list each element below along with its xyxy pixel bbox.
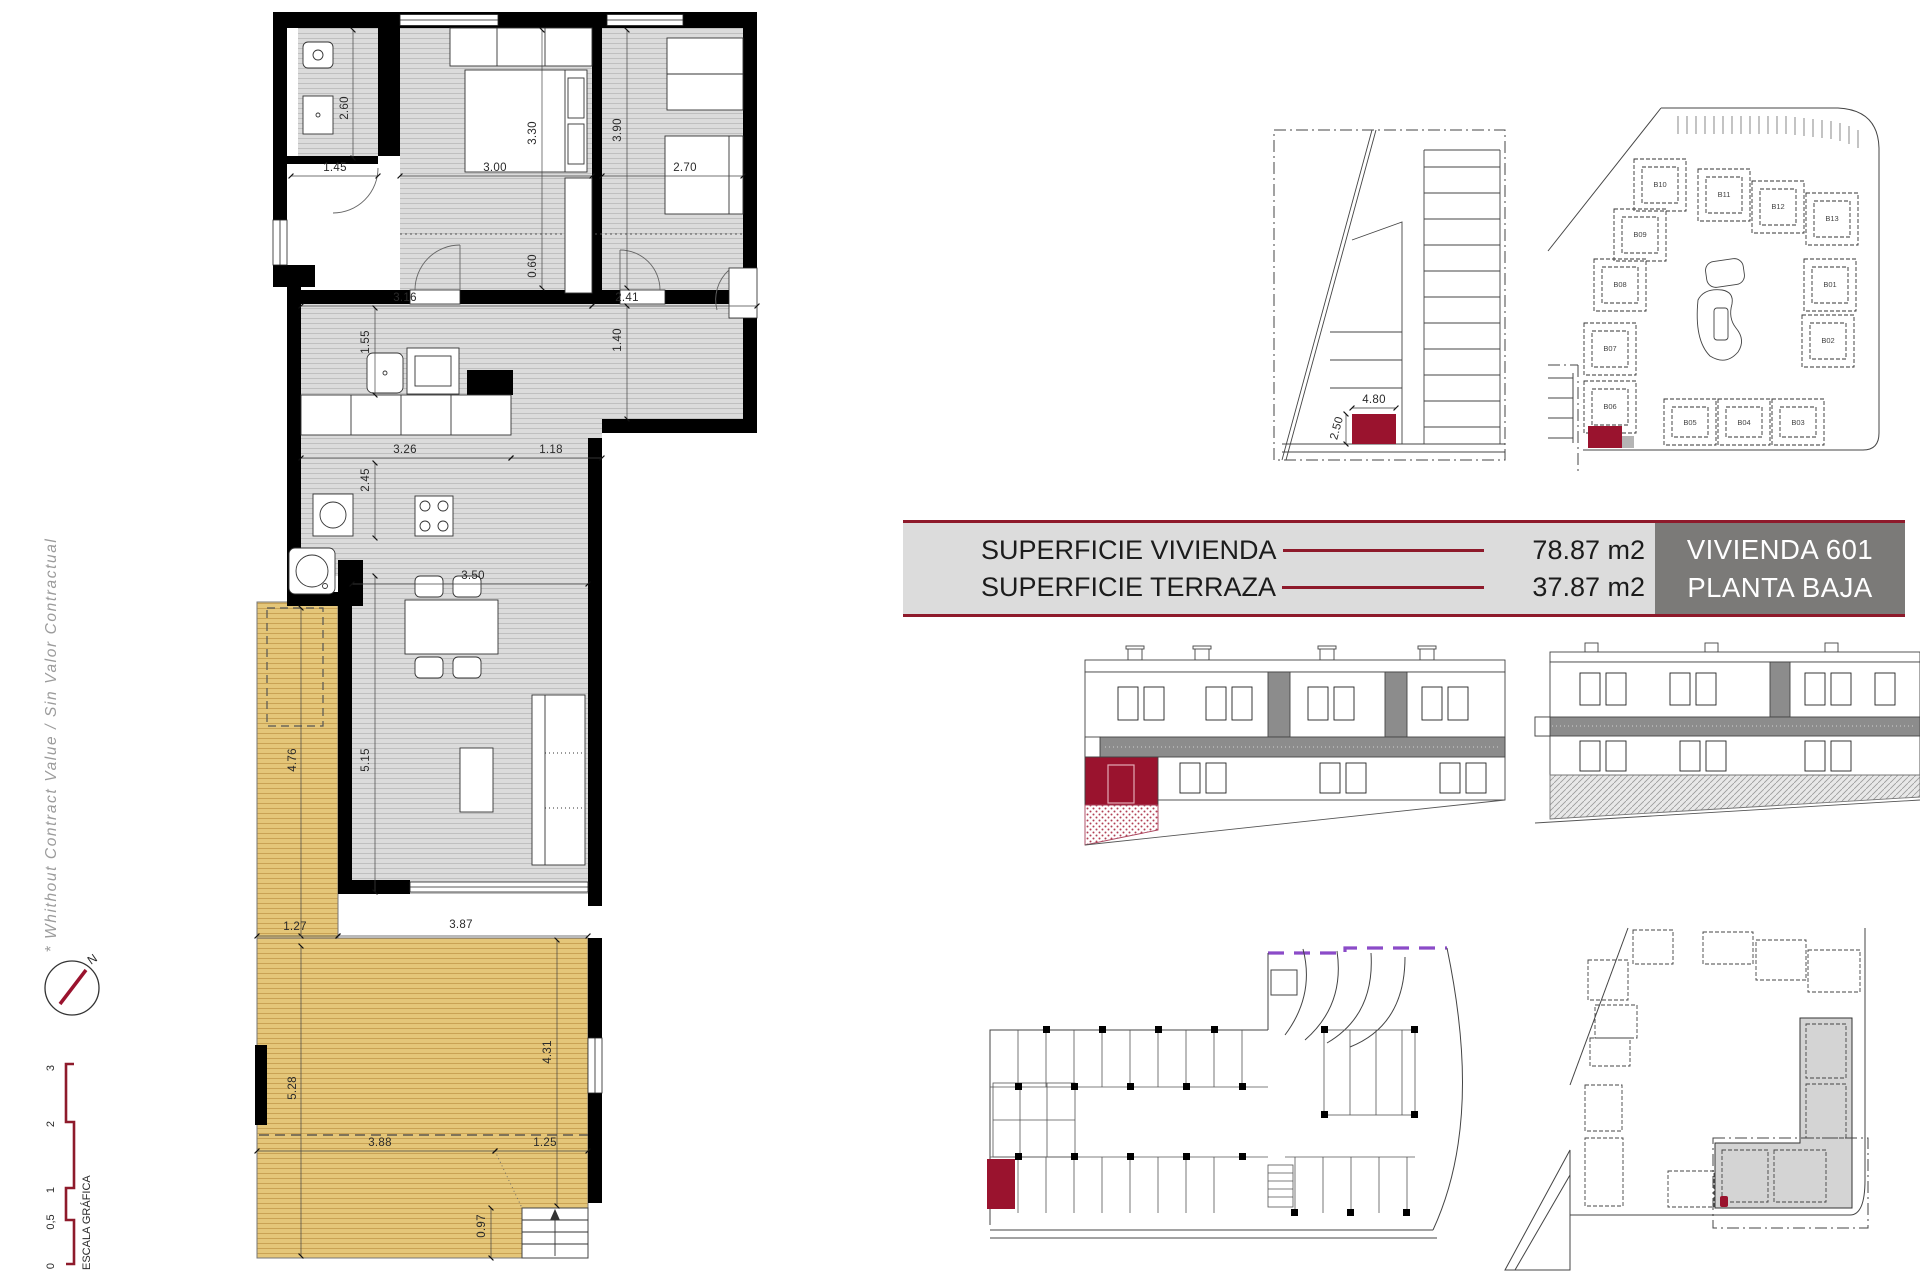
dim-label: 2.70 — [673, 162, 697, 174]
ramp-boundary-line — [1268, 948, 1447, 953]
unit-label: B13 — [1825, 214, 1838, 223]
highlighted-garage-stall — [987, 1159, 1015, 1209]
stall-length-label: 4.80 — [1362, 394, 1386, 406]
unit-label: B11 — [1718, 190, 1731, 199]
unit-label: B04 — [1737, 418, 1750, 427]
dim-label: 3.30 — [527, 121, 539, 145]
surface-value: 78.87 m2 — [1532, 535, 1645, 566]
highlighted-parking-stall — [1352, 414, 1396, 444]
dim-label: 1.40 — [612, 328, 624, 352]
dim-label: 4.76 — [287, 748, 299, 772]
unit-label: B10 — [1653, 180, 1666, 189]
dim-label: 2.60 — [339, 96, 351, 120]
parking-stalls — [990, 1030, 1415, 1213]
unit-floor: PLANTA BAJA — [1687, 572, 1872, 604]
graphic-scale-bar: 3 2 1 0,5 0 ESCALA GRÁFICA — [28, 1058, 128, 1276]
dim-label: 2.45 — [360, 468, 372, 492]
architectural-sheet: 2.60 1.45 3.00 3.30 3.90 2.70 0.60 3.16 … — [0, 0, 1920, 1280]
dim-label: 3.90 — [612, 118, 624, 142]
apartment-floor-plan: 2.60 1.45 3.00 3.30 3.90 2.70 0.60 3.16 … — [255, 8, 765, 1260]
unit-label: B01 — [1823, 280, 1836, 289]
pool — [1697, 257, 1745, 360]
dim-label: 3.16 — [393, 292, 417, 304]
surface-info-table: SUPERFICIE VIVIENDA 78.87 m2 SUPERFICIE … — [903, 520, 1905, 617]
surface-rows: SUPERFICIE VIVIENDA 78.87 m2 SUPERFICIE … — [903, 523, 1645, 614]
surface-label: SUPERFICIE TERRAZA — [981, 572, 1276, 603]
unit-label: B06 — [1603, 402, 1616, 411]
surface-value: 37.87 m2 — [1532, 572, 1645, 603]
unit-name: VIVIENDA 601 — [1687, 534, 1873, 566]
site-plan-key: B10 B09 B08 B11 B12 B13 B01 B02 B07 B06 … — [1548, 88, 1920, 478]
phase-area — [1715, 1018, 1852, 1208]
dim-label: 3.00 — [483, 162, 507, 174]
dim-label: 1.27 — [283, 921, 307, 933]
leader-line — [1282, 586, 1484, 589]
columns — [1015, 1026, 1418, 1216]
stall-width-label: 2.50 — [1328, 415, 1346, 441]
dim-label: 1.45 — [323, 162, 347, 174]
parking-detail-plan: 4.80 2.50 — [1272, 92, 1522, 467]
dim-label: 2.41 — [615, 292, 639, 304]
compass-needle — [60, 970, 86, 1004]
site-parking-ticks — [1678, 116, 1858, 148]
scale-mark: 0 — [45, 1263, 57, 1269]
leader-line — [1283, 549, 1485, 552]
unit-label: B09 — [1633, 230, 1646, 239]
dim-label: 1.55 — [360, 330, 372, 354]
dim-label: 4.31 — [542, 1040, 554, 1064]
dim-label: 3.88 — [368, 1137, 392, 1149]
dim-label: 5.15 — [360, 748, 372, 772]
highlighted-unit-site — [1588, 426, 1622, 448]
dim-label: 0.97 — [476, 1214, 488, 1238]
surface-label: SUPERFICIE VIVIENDA — [981, 535, 1277, 566]
unit-label: B02 — [1821, 336, 1834, 345]
north-compass: N — [38, 948, 110, 1022]
unit-label: B08 — [1613, 280, 1626, 289]
garage-floor-plan — [985, 935, 1570, 1275]
highlighted-unit-elevation — [1085, 757, 1158, 805]
building-elevations — [1080, 645, 1920, 855]
dim-label: 0.60 — [527, 254, 539, 278]
unit-title-box: VIVIENDA 601 PLANTA BAJA — [1655, 523, 1905, 614]
disclaimer-note: * Whithout Contract Value / Sin Valor Co… — [43, 538, 61, 953]
scale-mark: 0,5 — [45, 1214, 57, 1229]
unit-label: B07 — [1603, 344, 1616, 353]
scale-title: ESCALA GRÁFICA — [80, 1175, 93, 1270]
table-row: SUPERFICIE VIVIENDA 78.87 m2 — [981, 534, 1645, 566]
unit-label: B05 — [1683, 418, 1696, 427]
scale-mark: 1 — [45, 1187, 57, 1193]
dim-label: 1.18 — [539, 444, 563, 456]
scale-mark: 3 — [45, 1065, 57, 1071]
unit-label: B03 — [1791, 418, 1804, 427]
table-row: SUPERFICIE TERRAZA 37.87 m2 — [981, 571, 1645, 603]
dim-label: 1.25 — [533, 1137, 557, 1149]
unit-label: B12 — [1771, 202, 1784, 211]
scale-mark: 2 — [45, 1121, 57, 1127]
site-plan-location — [1570, 928, 1920, 1280]
unit-location-marker — [1720, 1196, 1728, 1207]
dim-label: 5.28 — [287, 1076, 299, 1100]
adjacent-unit — [1622, 436, 1634, 448]
dim-label: 3.26 — [393, 444, 417, 456]
dim-label: 3.87 — [449, 919, 473, 931]
dim-label: 3.50 — [461, 570, 485, 582]
